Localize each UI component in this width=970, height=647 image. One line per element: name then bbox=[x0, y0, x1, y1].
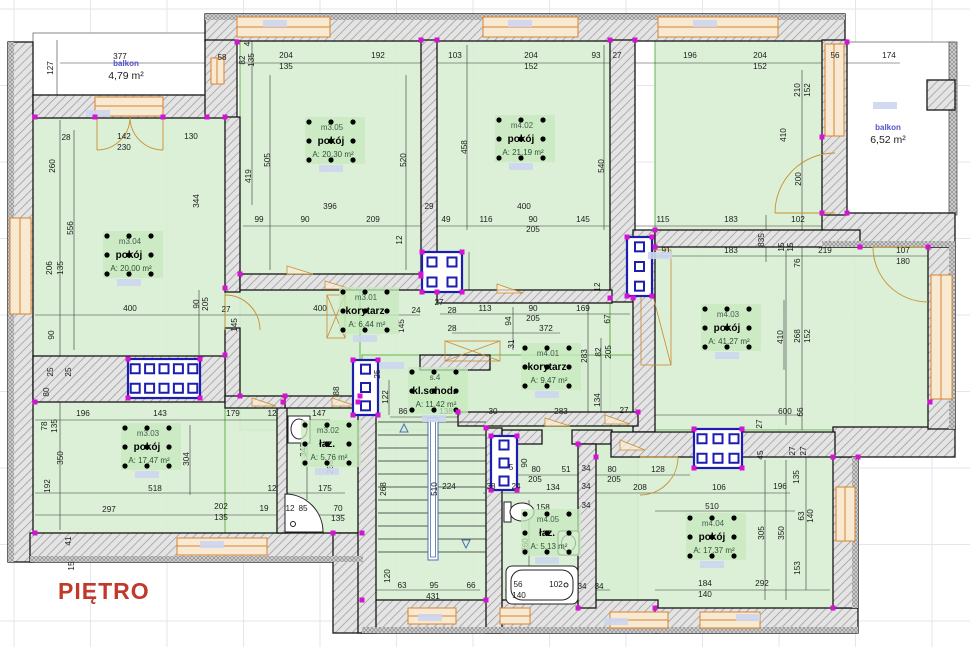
dimension-label: 350 bbox=[56, 451, 65, 465]
point-marker-icon bbox=[306, 119, 311, 124]
dimension-label: 135 bbox=[56, 261, 65, 275]
dimension-label: 27 bbox=[799, 446, 808, 456]
dimension-label: 30 bbox=[488, 407, 498, 416]
dim-tag bbox=[315, 468, 339, 475]
svg-text:A: 6,44 m²: A: 6,44 m² bbox=[349, 320, 386, 329]
dimension-label: 76 bbox=[793, 258, 802, 268]
room-label-m4.04: m4.04pokójA: 17,37 m² bbox=[686, 513, 746, 568]
svg-text:łaz.: łaz. bbox=[539, 528, 555, 539]
dimension-label: 88 bbox=[332, 386, 341, 396]
dimension-label: 344 bbox=[192, 194, 201, 208]
dimension-label: 152 bbox=[524, 62, 538, 71]
dimension-label: 184 bbox=[698, 579, 712, 588]
balcony-railing bbox=[949, 42, 957, 215]
dimension-label: 196 bbox=[773, 482, 787, 491]
snap-node-icon bbox=[456, 410, 461, 415]
dimension-label: 90 bbox=[47, 330, 56, 340]
point-marker-icon bbox=[104, 252, 109, 257]
dimension-label: 120 bbox=[383, 569, 392, 583]
dimension-label: 204 bbox=[524, 51, 538, 60]
svg-text:A: 41,27 m²: A: 41,27 m² bbox=[708, 337, 750, 346]
svg-text:m4.01: m4.01 bbox=[537, 349, 560, 358]
dimension-label: 41 bbox=[64, 536, 73, 546]
point-marker-icon bbox=[302, 441, 307, 446]
dimension-label: 103 bbox=[448, 51, 462, 60]
dim-tag bbox=[418, 614, 442, 621]
snap-node-icon bbox=[636, 410, 641, 415]
dimension-label: 93 bbox=[591, 51, 601, 60]
dimension-label: 510 bbox=[705, 502, 719, 511]
point-marker-icon bbox=[302, 460, 307, 465]
dimension-label: 208 bbox=[633, 483, 647, 492]
dimension-label: 205 bbox=[201, 297, 210, 311]
dimension-label: 38 bbox=[486, 482, 496, 491]
snap-node-icon bbox=[484, 598, 489, 603]
dim-tag bbox=[873, 102, 897, 109]
snap-node-icon bbox=[928, 400, 933, 405]
dimension-label: 66 bbox=[796, 407, 805, 417]
svg-text:m3.03: m3.03 bbox=[137, 429, 160, 438]
point-marker-icon bbox=[540, 117, 545, 122]
dimension-label: 102 bbox=[791, 215, 805, 224]
dim-tag bbox=[508, 20, 532, 27]
point-marker-icon bbox=[122, 444, 127, 449]
dim-tag bbox=[353, 335, 377, 342]
dim-tag bbox=[86, 110, 110, 117]
dimension-label: 28 bbox=[61, 133, 71, 142]
point-marker-icon bbox=[340, 327, 345, 332]
snap-node-icon bbox=[281, 400, 286, 405]
vent-shaft bbox=[351, 358, 381, 418]
window bbox=[500, 608, 530, 624]
dimension-label: 192 bbox=[43, 479, 52, 493]
point-marker-icon bbox=[122, 463, 127, 468]
svg-text:kl.schod.: kl.schod. bbox=[412, 386, 456, 397]
svg-text:A: 17,37 m²: A: 17,37 m² bbox=[693, 546, 735, 555]
dimension-label: 15 bbox=[786, 242, 795, 252]
dimension-label: 28 bbox=[447, 324, 457, 333]
snap-node-icon bbox=[435, 290, 440, 295]
dimension-label: 145 bbox=[230, 318, 239, 332]
dimension-label: 134 bbox=[546, 483, 560, 492]
dimension-label: 224 bbox=[442, 482, 456, 491]
dimension-label: 204 bbox=[753, 51, 767, 60]
snap-node-icon bbox=[926, 245, 931, 250]
dimension-label: 179 bbox=[226, 409, 240, 418]
dimension-label: 27 bbox=[619, 406, 629, 415]
dimension-label: 90 bbox=[528, 215, 538, 224]
dimension-label: 135 bbox=[331, 514, 345, 523]
dimension-label: 19 bbox=[259, 504, 269, 513]
svg-text:m3.02: m3.02 bbox=[317, 426, 340, 435]
dimension-label: 518 bbox=[148, 484, 162, 493]
point-marker-icon bbox=[346, 441, 351, 446]
svg-text:m4.02: m4.02 bbox=[511, 121, 534, 130]
point-marker-icon bbox=[731, 515, 736, 520]
dim-tag bbox=[736, 614, 760, 621]
dimension-label: 283 bbox=[554, 407, 568, 416]
dimension-label: 49 bbox=[441, 215, 451, 224]
snap-node-icon bbox=[831, 455, 836, 460]
dimension-label: 175 bbox=[318, 484, 332, 493]
svg-text:A: 11,42 m²: A: 11,42 m² bbox=[416, 400, 457, 409]
snap-node-icon bbox=[283, 394, 288, 399]
point-marker-icon bbox=[384, 289, 389, 294]
dimension-label: 45 bbox=[756, 450, 765, 460]
room-label-m4.05: m4.05łaz.A: 5,13 m² bbox=[521, 509, 581, 564]
snap-node-icon bbox=[238, 272, 243, 277]
svg-text:A: 9,47 m²: A: 9,47 m² bbox=[531, 376, 568, 385]
svg-text:pokój: pokój bbox=[134, 442, 161, 453]
dimension-label: 63 bbox=[797, 511, 806, 521]
dim-tag bbox=[422, 415, 446, 422]
dimension-label: 25 bbox=[373, 369, 382, 379]
dimension-label: 183 bbox=[724, 246, 738, 255]
dimension-label: 135 bbox=[792, 470, 801, 484]
dimension-label: 78 bbox=[40, 421, 49, 431]
svg-text:pokój: pokój bbox=[508, 134, 535, 145]
dimension-label: 12 bbox=[285, 504, 295, 513]
dimension-label: 304 bbox=[182, 452, 191, 466]
dimension-label: 260 bbox=[48, 159, 57, 173]
dimension-label: 106 bbox=[712, 483, 726, 492]
dimension-label: 85 bbox=[298, 504, 308, 513]
dimension-label: 27 bbox=[221, 305, 231, 314]
dimension-label: 113 bbox=[478, 304, 491, 313]
snap-node-icon bbox=[653, 606, 658, 611]
snap-node-icon bbox=[633, 38, 638, 43]
point-marker-icon bbox=[306, 157, 311, 162]
point-marker-icon bbox=[409, 369, 414, 374]
svg-text:balkon: balkon bbox=[113, 59, 139, 68]
snap-node-icon bbox=[33, 400, 38, 405]
dimension-label: 28 bbox=[447, 306, 457, 315]
window bbox=[931, 275, 952, 399]
point-marker-icon bbox=[702, 306, 707, 311]
dimension-label: 27 bbox=[788, 446, 797, 456]
snap-node-icon bbox=[223, 353, 228, 358]
dimension-label: 268 bbox=[379, 482, 388, 496]
dimension-label: 510 bbox=[430, 482, 439, 496]
point-marker-icon bbox=[702, 344, 707, 349]
dimension-label: 102 bbox=[549, 580, 563, 589]
dimension-label: 174 bbox=[882, 51, 896, 60]
point-marker-icon bbox=[746, 306, 751, 311]
dimension-label: 67 bbox=[603, 314, 612, 324]
dimension-label: 63 bbox=[397, 581, 407, 590]
dimension-label: 142 bbox=[117, 132, 131, 141]
dimension-label: 143 bbox=[153, 409, 167, 418]
dimension-label: 12 bbox=[395, 235, 404, 245]
svg-text:pokój: pokój bbox=[318, 136, 345, 147]
dimension-label: 90 bbox=[520, 458, 529, 468]
dimension-label: 210 bbox=[793, 83, 802, 97]
dimension-label: 135 bbox=[214, 513, 228, 522]
svg-text:m4.04: m4.04 bbox=[702, 519, 725, 528]
dimension-label: 51 bbox=[561, 465, 571, 474]
dimension-label: 205 bbox=[604, 345, 613, 359]
dimension-label: 410 bbox=[779, 128, 788, 142]
point-marker-icon bbox=[306, 138, 311, 143]
room-label-m3.02: m3.02łaz.A: 5,76 m² bbox=[301, 420, 361, 475]
svg-text:A: 17,47 m²: A: 17,47 m² bbox=[128, 456, 170, 465]
point-marker-icon bbox=[496, 155, 501, 160]
snap-node-icon bbox=[435, 38, 440, 43]
point-marker-icon bbox=[122, 425, 127, 430]
svg-text:4,79 m²: 4,79 m² bbox=[108, 70, 144, 82]
point-marker-icon bbox=[302, 422, 307, 427]
dim-tag bbox=[535, 557, 559, 564]
room-label-m4.02: m4.02pokójA: 21,19 m² bbox=[495, 115, 555, 170]
dimension-label: 130 bbox=[184, 132, 198, 141]
point-marker-icon bbox=[166, 444, 171, 449]
svg-text:6,52 m²: 6,52 m² bbox=[870, 134, 906, 146]
dimension-label: 600 bbox=[778, 407, 792, 416]
room-label-m3.01: m3.01korytarzA: 6,44 m² bbox=[339, 287, 399, 342]
dimension-label: 134 bbox=[593, 393, 602, 407]
dimension-label: 80 bbox=[531, 465, 541, 474]
snap-node-icon bbox=[820, 135, 825, 140]
point-marker-icon bbox=[702, 325, 707, 330]
dimension-label: 204 bbox=[279, 51, 293, 60]
snap-node-icon bbox=[33, 531, 38, 536]
snap-node-icon bbox=[858, 245, 863, 250]
point-marker-icon bbox=[496, 136, 501, 141]
dimension-label: 25 bbox=[64, 367, 73, 377]
dimension-label: 34 bbox=[577, 582, 587, 591]
dimension-label: 180 bbox=[896, 257, 910, 266]
svg-text:pokój: pokój bbox=[116, 250, 143, 261]
floor-title: PIĘTRO bbox=[58, 578, 150, 605]
point-marker-icon bbox=[496, 117, 501, 122]
dimension-label: 56 bbox=[830, 51, 840, 60]
dim-tag bbox=[509, 163, 533, 170]
dimension-label: 835 bbox=[757, 233, 766, 247]
dimension-label: 140 bbox=[806, 509, 815, 523]
point-marker-icon bbox=[340, 289, 345, 294]
dimension-label: 12 bbox=[267, 484, 277, 493]
dimension-label: 135 bbox=[279, 62, 293, 71]
room-label-m4.03: m4.03pokójA: 41,27 m² bbox=[701, 304, 761, 359]
point-marker-icon bbox=[687, 515, 692, 520]
dimension-label: 5 bbox=[509, 463, 514, 472]
dimension-label: 29 bbox=[424, 202, 434, 211]
dimension-label: 99 bbox=[254, 215, 264, 224]
snap-node-icon bbox=[419, 272, 424, 277]
dimension-label: 202 bbox=[214, 502, 228, 511]
dim-tag bbox=[700, 561, 724, 568]
dimension-label: 122 bbox=[381, 390, 390, 404]
dim-tag bbox=[263, 20, 287, 27]
svg-text:A: 5,76 m²: A: 5,76 m² bbox=[311, 453, 348, 462]
dimension-label: 107 bbox=[896, 246, 910, 255]
dim-tag bbox=[200, 541, 224, 548]
floorplan-drawing: 3771275882135420413519210320415293271962… bbox=[0, 0, 970, 647]
dimension-label: 152 bbox=[803, 83, 812, 97]
point-marker-icon bbox=[731, 534, 736, 539]
dimension-label: 27 bbox=[612, 51, 622, 60]
dimension-label: 196 bbox=[76, 409, 90, 418]
snap-node-icon bbox=[484, 426, 489, 431]
floorplan-canvas: 3771275882135420413519210320415293271962… bbox=[0, 0, 970, 647]
dimension-label: 196 bbox=[683, 51, 697, 60]
dimension-label: 34 bbox=[594, 582, 604, 591]
dim-tag bbox=[535, 391, 559, 398]
window bbox=[10, 218, 31, 314]
svg-text:pokój: pokój bbox=[699, 532, 726, 543]
svg-text:m4.05: m4.05 bbox=[537, 515, 560, 524]
dimension-label: 209 bbox=[366, 215, 380, 224]
point-marker-icon bbox=[453, 369, 458, 374]
svg-text:A: 21,19 m²: A: 21,19 m² bbox=[502, 148, 544, 157]
snap-node-icon bbox=[856, 455, 861, 460]
point-marker-icon bbox=[166, 425, 171, 430]
dimension-label: 230 bbox=[117, 143, 131, 152]
svg-text:A: 20,00 m²: A: 20,00 m² bbox=[110, 264, 152, 273]
svg-text:m3.05: m3.05 bbox=[321, 123, 344, 132]
point-marker-icon bbox=[687, 553, 692, 558]
point-marker-icon bbox=[566, 364, 571, 369]
point-marker-icon bbox=[350, 119, 355, 124]
room-label-m3.03: m3.03pokójA: 17,47 m² bbox=[121, 423, 181, 478]
dim-tag bbox=[117, 279, 141, 286]
snap-node-icon bbox=[631, 296, 636, 301]
dimension-label: 127 bbox=[46, 61, 55, 75]
snap-node-icon bbox=[331, 531, 336, 536]
dimension-label: 283 bbox=[580, 349, 589, 363]
dimension-label: 372 bbox=[539, 324, 553, 333]
svg-text:A: 20,30 m²: A: 20,30 m² bbox=[312, 150, 354, 159]
room-label-m3.04: m3.04pokójA: 20,00 m² bbox=[103, 231, 163, 286]
dimension-label: 4 bbox=[243, 41, 252, 46]
point-marker-icon bbox=[148, 252, 153, 257]
dimension-label: 115 bbox=[656, 215, 669, 224]
dimension-label: 90 bbox=[300, 215, 310, 224]
dimension-label: 27 bbox=[755, 419, 764, 429]
point-marker-icon bbox=[346, 422, 351, 427]
dimension-label: 540 bbox=[597, 159, 606, 173]
dimension-label: 268 bbox=[793, 329, 802, 343]
dimension-label: 15 bbox=[777, 242, 786, 252]
snap-node-icon bbox=[223, 286, 228, 291]
snap-node-icon bbox=[419, 38, 424, 43]
svg-text:A: 5,13 m²: A: 5,13 m² bbox=[531, 542, 568, 551]
room-label-m3.05: m3.05pokójA: 20,30 m² bbox=[305, 117, 365, 172]
vent-shaft bbox=[692, 427, 745, 471]
dimension-label: 147 bbox=[312, 409, 326, 418]
point-marker-icon bbox=[522, 345, 527, 350]
balcony-label: balkon4,79 m² bbox=[108, 59, 144, 82]
snap-node-icon bbox=[845, 211, 850, 216]
dimension-label: 200 bbox=[794, 172, 803, 186]
dimension-label: 153 bbox=[793, 561, 802, 575]
vent-shaft bbox=[420, 250, 465, 295]
dim-tag bbox=[693, 20, 717, 27]
point-marker-icon bbox=[522, 549, 527, 554]
dimension-label: 128 bbox=[651, 465, 665, 474]
dimension-label: 400 bbox=[313, 304, 327, 313]
point-marker-icon bbox=[104, 233, 109, 238]
dimension-label: 12 bbox=[593, 282, 602, 292]
window bbox=[658, 17, 778, 37]
point-marker-icon bbox=[104, 271, 109, 276]
svg-text:pokój: pokój bbox=[714, 323, 741, 334]
point-marker-icon bbox=[566, 530, 571, 535]
dimension-label: 34 bbox=[581, 501, 591, 510]
snap-node-icon bbox=[205, 115, 210, 120]
point-marker-icon bbox=[522, 511, 527, 516]
dimension-label: 556 bbox=[66, 221, 75, 235]
snap-node-icon bbox=[653, 245, 658, 250]
dimension-label: 169 bbox=[576, 304, 590, 313]
snap-node-icon bbox=[360, 531, 365, 536]
snap-node-icon bbox=[608, 38, 613, 43]
vent-shaft bbox=[625, 235, 655, 299]
dimension-label: 31 bbox=[507, 339, 516, 349]
dimension-label: 183 bbox=[724, 215, 738, 224]
snap-node-icon bbox=[223, 115, 228, 120]
dimension-label: 90 bbox=[192, 299, 201, 309]
dimension-label: 396 bbox=[323, 202, 337, 211]
dim-tag bbox=[648, 252, 672, 259]
dimension-label: 410 bbox=[776, 330, 785, 344]
dimension-label: 15 bbox=[67, 561, 76, 571]
dimension-label: 80 bbox=[607, 465, 617, 474]
dimension-label: 292 bbox=[755, 579, 769, 588]
point-marker-icon bbox=[746, 325, 751, 330]
window bbox=[836, 487, 855, 541]
dimension-label: 94 bbox=[504, 316, 513, 326]
dimension-label: 152 bbox=[803, 329, 812, 343]
snap-node-icon bbox=[356, 400, 361, 405]
dimension-label: 34 bbox=[581, 464, 591, 473]
point-marker-icon bbox=[687, 534, 692, 539]
snap-node-icon bbox=[358, 394, 363, 399]
snap-node-icon bbox=[33, 115, 38, 120]
dimension-label: 505 bbox=[263, 153, 272, 167]
snap-node-icon bbox=[820, 211, 825, 216]
dimension-label: 305 bbox=[757, 526, 766, 540]
svg-text:s.4: s.4 bbox=[430, 373, 441, 382]
dimension-label: 70 bbox=[333, 504, 343, 513]
dimension-label: 297 bbox=[102, 505, 116, 514]
dimension-label: 24 bbox=[511, 482, 521, 491]
dimension-label: 400 bbox=[517, 202, 531, 211]
dimension-label: 135 bbox=[247, 53, 256, 67]
svg-text:korytarz: korytarz bbox=[346, 306, 385, 317]
dimension-label: 419 bbox=[244, 169, 253, 183]
snap-node-icon bbox=[608, 296, 613, 301]
snap-node-icon bbox=[831, 606, 836, 611]
snap-node-icon bbox=[161, 115, 166, 120]
point-marker-icon bbox=[384, 308, 389, 313]
dimension-label: 95 bbox=[429, 581, 439, 590]
point-marker-icon bbox=[350, 138, 355, 143]
point-marker-icon bbox=[522, 383, 527, 388]
dimension-label: 458 bbox=[460, 140, 469, 154]
dim-tag bbox=[604, 618, 628, 625]
point-marker-icon bbox=[566, 511, 571, 516]
room-floor-areas bbox=[33, 40, 928, 608]
dimension-label: 350 bbox=[777, 526, 786, 540]
dimension-label: 25 bbox=[46, 367, 55, 377]
dimension-label: 56 bbox=[513, 580, 523, 589]
snap-node-icon bbox=[576, 442, 581, 447]
dim-tag bbox=[380, 362, 404, 369]
dimension-label: 140 bbox=[512, 591, 526, 600]
point-marker-icon bbox=[540, 136, 545, 141]
dimension-label: 205 bbox=[607, 475, 621, 484]
